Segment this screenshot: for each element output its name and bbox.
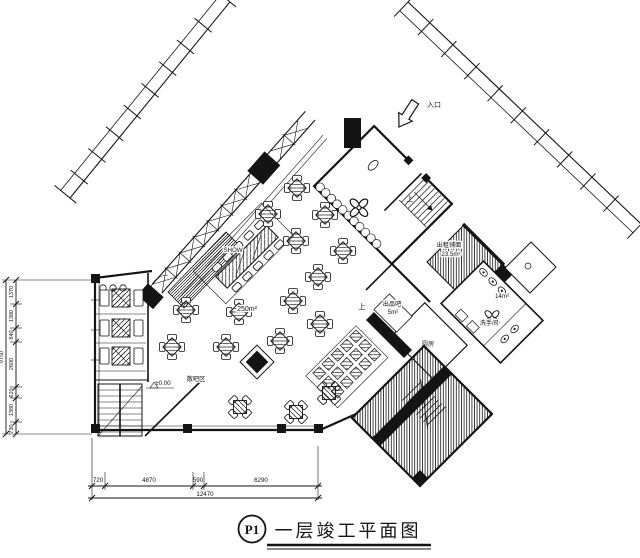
dining-table [308,312,333,337]
booth-table [112,289,130,307]
feature-diamond [240,345,274,379]
dim-band-top-left [55,0,237,203]
dining-table [284,229,309,254]
dim-total-label: 9750 [0,351,5,363]
label-entrance: 入口 [427,101,441,109]
staircase-block [352,346,492,486]
dim-label: 730 [9,424,15,433]
column [183,424,192,433]
label-rental-shop-area: 23.5m² [441,251,460,258]
dim-total-label: 12470 [196,491,214,498]
booth-table [112,347,130,365]
dim-left: 1370 1380 840 2600 610 1380 730 9750 [0,277,92,437]
dining-table [214,335,239,360]
label-service-bar-area: 5m² [388,309,399,316]
label-stair-up-bar: 上 [359,302,366,311]
dining-table [285,176,310,201]
dining-table [331,239,356,264]
dim-label: 720 [93,477,104,484]
staircase-left [98,384,142,436]
dining-table [160,335,185,360]
dining-tables [160,176,356,430]
column [91,424,100,433]
label-rental-shop: 出租铺面 [437,241,462,249]
dim-label: 590 [193,477,204,484]
label-restroom-area: 14m² [495,293,509,300]
dim-label: 2600 [9,358,15,370]
label-level: ±0.00 [155,380,171,387]
label-hall-area: 250m² [237,306,258,313]
floor-plan-sheet: SHOW [0,0,640,553]
dining-table [281,289,306,314]
label-service-bar: 出品吧 [383,300,402,308]
dim-label: 840 [9,330,15,339]
floor-plan-drawing: SHOW [0,0,640,553]
label-lounge-zone: 散吧区 [187,375,206,383]
dim-label: 1370 [9,286,15,298]
booth-table [112,319,130,337]
label-restroom: 洗手间 [480,319,499,327]
title-block: P1 一层竣工平面图 [239,516,432,550]
booth-seating [96,285,146,371]
dim-label: 4870 [142,477,156,484]
entrance-lobby [313,124,454,265]
connector-walls [366,264,430,302]
sheet-title: 一层竣工平面图 [275,521,422,541]
sheet-tag: P1 [245,522,259,537]
label-stair-up-lobby: 上 [407,194,414,203]
dining-table [306,265,331,290]
dining-table [268,329,293,354]
column [91,274,100,283]
dim-label: 610 [9,388,15,397]
dim-label: 6290 [254,477,268,484]
fixture [525,263,531,269]
level-marker: ±0.00 [146,380,174,388]
label-stage: SHOW [223,247,242,254]
canopy-block [344,118,361,148]
dining-table [222,389,257,424]
dim-label: 1380 [9,310,15,322]
dim-bottom: 720 4870 590 6290 12470 [88,438,322,501]
column [277,424,286,433]
column [314,424,323,433]
dim-label: 1380 [9,404,15,416]
entrance-arrow: 入口 [399,100,441,127]
